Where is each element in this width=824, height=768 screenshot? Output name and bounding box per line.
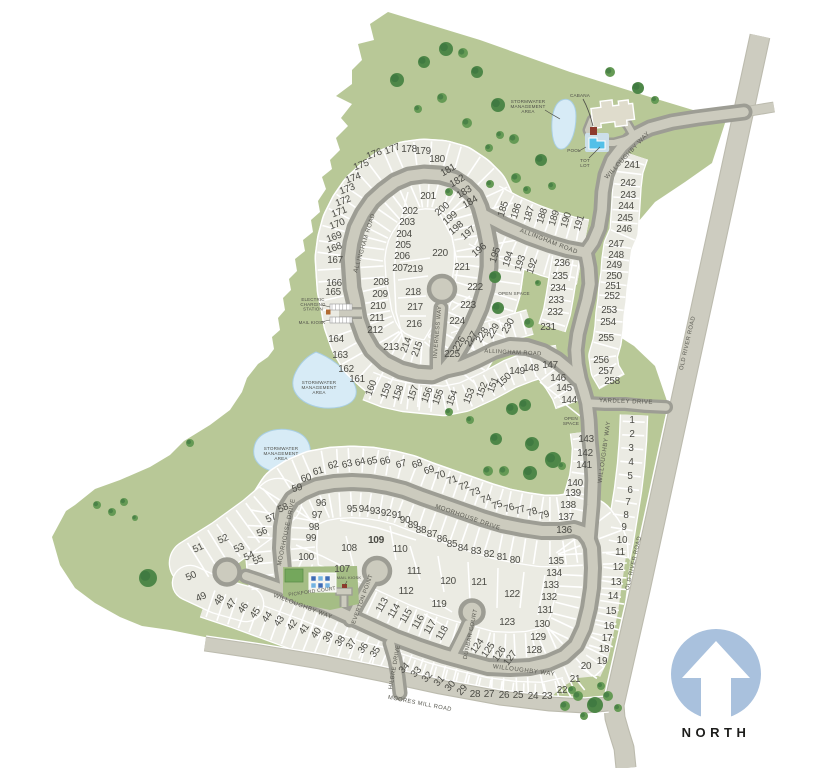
svg-text:205: 205 xyxy=(395,240,411,251)
svg-text:MAIL KIOSK: MAIL KIOSK xyxy=(299,320,326,325)
svg-text:87: 87 xyxy=(427,529,437,540)
svg-text:242: 242 xyxy=(620,178,636,189)
svg-text:223: 223 xyxy=(460,300,476,311)
svg-text:141: 141 xyxy=(576,460,592,471)
svg-text:132: 132 xyxy=(541,592,557,603)
svg-text:167: 167 xyxy=(327,255,343,266)
svg-text:210: 210 xyxy=(370,301,386,312)
svg-text:28: 28 xyxy=(470,689,481,700)
svg-text:5: 5 xyxy=(627,471,633,482)
svg-text:253: 253 xyxy=(601,305,617,316)
svg-text:109: 109 xyxy=(368,535,385,546)
svg-text:212: 212 xyxy=(367,325,383,336)
svg-text:96: 96 xyxy=(316,498,327,509)
svg-text:220: 220 xyxy=(432,248,448,259)
svg-text:244: 244 xyxy=(618,201,634,212)
svg-text:19: 19 xyxy=(597,656,608,667)
svg-text:258: 258 xyxy=(604,376,620,387)
svg-text:180: 180 xyxy=(429,154,445,165)
svg-text:22: 22 xyxy=(557,685,567,696)
svg-text:138: 138 xyxy=(560,500,576,511)
svg-text:222: 222 xyxy=(467,282,483,293)
svg-text:144: 144 xyxy=(561,395,577,406)
svg-text:256: 256 xyxy=(593,355,609,366)
svg-text:231: 231 xyxy=(540,322,556,333)
svg-text:111: 111 xyxy=(407,566,422,577)
svg-text:147: 147 xyxy=(542,360,558,371)
svg-text:218: 218 xyxy=(405,287,421,298)
svg-text:110: 110 xyxy=(393,544,409,555)
svg-text:232: 232 xyxy=(547,307,563,318)
svg-text:121: 121 xyxy=(471,577,487,588)
svg-text:81: 81 xyxy=(497,552,508,563)
svg-text:15: 15 xyxy=(606,606,617,617)
svg-text:149: 149 xyxy=(509,366,525,377)
svg-text:236: 236 xyxy=(554,258,570,269)
svg-text:247: 247 xyxy=(608,239,624,250)
svg-text:164: 164 xyxy=(328,334,344,345)
svg-text:208: 208 xyxy=(373,277,389,288)
svg-text:204: 204 xyxy=(396,229,412,240)
svg-text:3: 3 xyxy=(628,443,634,454)
svg-text:133: 133 xyxy=(543,580,559,591)
svg-text:12: 12 xyxy=(613,562,623,573)
svg-text:252: 252 xyxy=(604,291,620,302)
svg-text:143: 143 xyxy=(578,434,594,445)
svg-text:OPEN SPACE: OPEN SPACE xyxy=(498,291,530,296)
svg-text:119: 119 xyxy=(432,599,448,610)
svg-text:86: 86 xyxy=(437,534,448,545)
svg-text:136: 136 xyxy=(556,525,572,536)
svg-text:122: 122 xyxy=(504,589,520,600)
svg-text:207: 207 xyxy=(392,263,408,274)
svg-text:140: 140 xyxy=(567,478,583,489)
svg-text:120: 120 xyxy=(440,576,456,587)
svg-text:AREA: AREA xyxy=(521,109,535,114)
svg-text:2: 2 xyxy=(629,429,634,440)
svg-text:235: 235 xyxy=(552,271,568,282)
svg-text:129: 129 xyxy=(530,632,546,643)
svg-text:108: 108 xyxy=(341,543,357,554)
svg-text:202: 202 xyxy=(402,206,418,217)
svg-text:SPACE: SPACE xyxy=(563,421,579,426)
svg-text:AREA: AREA xyxy=(312,390,326,395)
svg-text:139: 139 xyxy=(565,488,581,499)
svg-text:25: 25 xyxy=(513,690,524,701)
svg-text:21: 21 xyxy=(570,674,581,685)
svg-text:107: 107 xyxy=(334,564,350,575)
svg-text:92: 92 xyxy=(381,508,391,519)
svg-text:137: 137 xyxy=(558,512,574,523)
svg-text:128: 128 xyxy=(526,645,542,656)
svg-text:AREA: AREA xyxy=(274,456,288,461)
svg-text:82: 82 xyxy=(484,549,494,560)
svg-text:6: 6 xyxy=(627,485,633,496)
svg-text:17: 17 xyxy=(602,633,612,644)
svg-text:11: 11 xyxy=(615,547,625,558)
svg-text:27: 27 xyxy=(484,689,494,700)
svg-text:18: 18 xyxy=(599,644,610,655)
svg-text:9: 9 xyxy=(621,522,627,533)
svg-text:7: 7 xyxy=(625,497,630,508)
svg-text:254: 254 xyxy=(600,317,616,328)
svg-text:95: 95 xyxy=(347,504,358,515)
svg-text:91: 91 xyxy=(392,510,403,521)
svg-text:145: 145 xyxy=(556,383,572,394)
svg-text:163: 163 xyxy=(332,350,348,361)
svg-text:24: 24 xyxy=(528,691,539,702)
svg-text:99: 99 xyxy=(306,533,317,544)
svg-text:93: 93 xyxy=(370,506,381,517)
svg-text:233: 233 xyxy=(548,295,564,306)
svg-text:97: 97 xyxy=(312,510,322,521)
svg-text:CABANA: CABANA xyxy=(570,93,591,98)
svg-text:234: 234 xyxy=(550,283,566,294)
svg-text:16: 16 xyxy=(604,621,615,632)
svg-text:4: 4 xyxy=(628,457,634,468)
svg-text:131: 131 xyxy=(537,605,553,616)
svg-text:130: 130 xyxy=(534,619,550,630)
svg-text:245: 245 xyxy=(617,213,633,224)
svg-text:84: 84 xyxy=(458,543,469,554)
svg-text:112: 112 xyxy=(399,586,414,597)
svg-text:23: 23 xyxy=(542,691,553,702)
svg-text:166: 166 xyxy=(326,278,342,289)
svg-text:NORTH: NORTH xyxy=(682,725,751,740)
svg-text:255: 255 xyxy=(598,333,614,344)
svg-text:1: 1 xyxy=(629,415,635,426)
svg-text:94: 94 xyxy=(359,504,370,515)
svg-text:241: 241 xyxy=(624,160,640,171)
svg-text:201: 201 xyxy=(420,191,436,202)
svg-text:142: 142 xyxy=(577,448,593,459)
svg-text:85: 85 xyxy=(447,539,458,550)
svg-text:123: 123 xyxy=(499,617,515,628)
svg-text:221: 221 xyxy=(454,262,470,273)
svg-text:MAIL KIOSK: MAIL KIOSK xyxy=(337,575,362,580)
svg-text:249: 249 xyxy=(606,260,622,271)
svg-text:135: 135 xyxy=(548,556,564,567)
svg-text:217: 217 xyxy=(407,302,423,313)
svg-text:8: 8 xyxy=(623,510,629,521)
svg-text:161: 161 xyxy=(349,374,365,385)
svg-text:10: 10 xyxy=(617,535,628,546)
svg-text:224: 224 xyxy=(449,316,465,327)
svg-text:26: 26 xyxy=(499,690,510,701)
svg-text:100: 100 xyxy=(298,552,314,563)
svg-text:148: 148 xyxy=(523,363,539,374)
svg-text:STATION: STATION xyxy=(303,307,323,312)
svg-text:206: 206 xyxy=(394,251,410,262)
svg-text:216: 216 xyxy=(406,319,422,330)
svg-text:98: 98 xyxy=(309,522,320,533)
svg-text:209: 209 xyxy=(372,289,388,300)
svg-text:20: 20 xyxy=(581,661,592,672)
svg-text:13: 13 xyxy=(611,577,622,588)
svg-text:213: 213 xyxy=(383,342,399,353)
svg-text:83: 83 xyxy=(471,546,482,557)
svg-text:162: 162 xyxy=(338,364,354,375)
svg-text:211: 211 xyxy=(370,313,386,324)
svg-text:POOL: POOL xyxy=(567,148,581,153)
svg-text:14: 14 xyxy=(608,591,619,602)
svg-text:80: 80 xyxy=(510,555,521,566)
svg-text:134: 134 xyxy=(546,568,562,579)
svg-text:LOT: LOT xyxy=(580,163,590,168)
svg-text:203: 203 xyxy=(399,217,415,228)
svg-text:246: 246 xyxy=(616,224,632,235)
svg-text:243: 243 xyxy=(620,190,636,201)
svg-text:219: 219 xyxy=(407,264,423,275)
svg-text:146: 146 xyxy=(550,373,566,384)
